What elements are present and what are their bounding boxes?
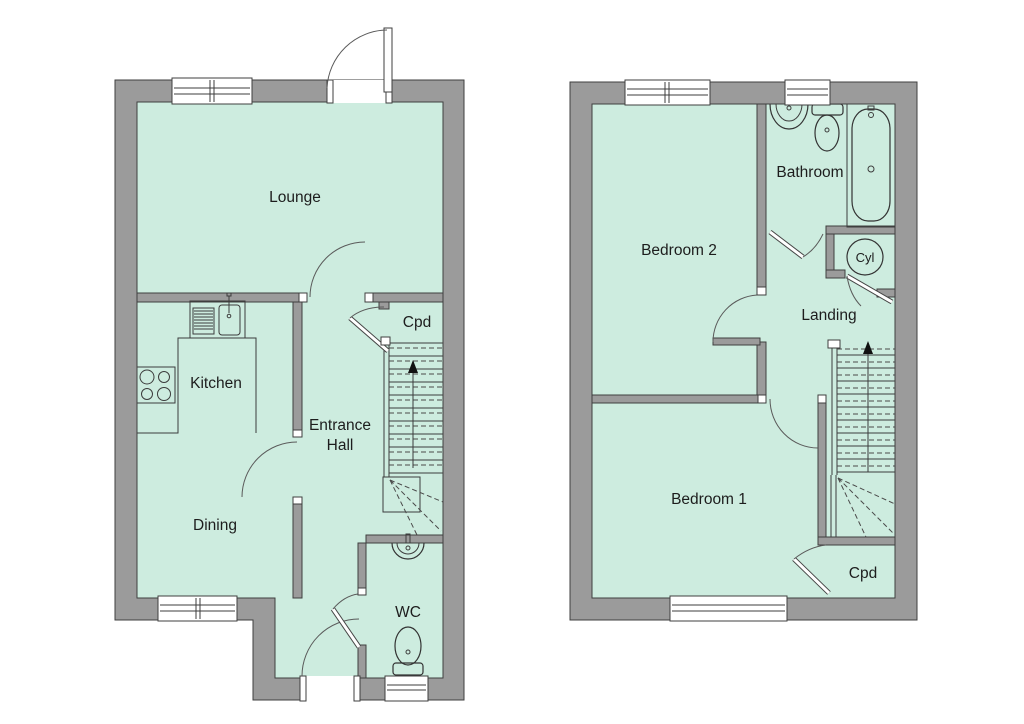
label-bedroom1: Bedroom 1 xyxy=(671,491,747,508)
label-entrance-hall-line2: Hall xyxy=(327,437,354,454)
front-door xyxy=(327,28,392,103)
wc-window xyxy=(385,676,428,701)
label-cylinder: Cyl xyxy=(856,250,875,265)
bedroom1-window xyxy=(670,596,787,621)
dining-window xyxy=(158,596,237,621)
first-floor-plan: Bedroom 2 Bathroom Landing Cyl Bedroom 1… xyxy=(570,80,917,621)
label-lounge: Lounge xyxy=(269,189,321,206)
bathroom-window xyxy=(785,80,830,105)
label-landing: Landing xyxy=(801,307,856,324)
label-dining: Dining xyxy=(193,517,237,534)
lounge-window xyxy=(172,78,252,104)
label-entrance-hall-line1: Entrance xyxy=(309,417,371,434)
first-floor-interior xyxy=(592,104,895,598)
bedroom2-window xyxy=(625,80,710,105)
label-cupboard-first: Cpd xyxy=(849,565,877,582)
ground-floor-plan: Lounge Kitchen Dining Entrance Hall Cpd … xyxy=(115,28,464,701)
label-bedroom2: Bedroom 2 xyxy=(641,242,717,259)
label-bathroom: Bathroom xyxy=(776,164,843,181)
floor-plan-canvas: Lounge Kitchen Dining Entrance Hall Cpd … xyxy=(0,0,1024,724)
label-wc: WC xyxy=(395,604,421,621)
label-cupboard-ground: Cpd xyxy=(403,314,431,331)
label-kitchen: Kitchen xyxy=(190,375,242,392)
